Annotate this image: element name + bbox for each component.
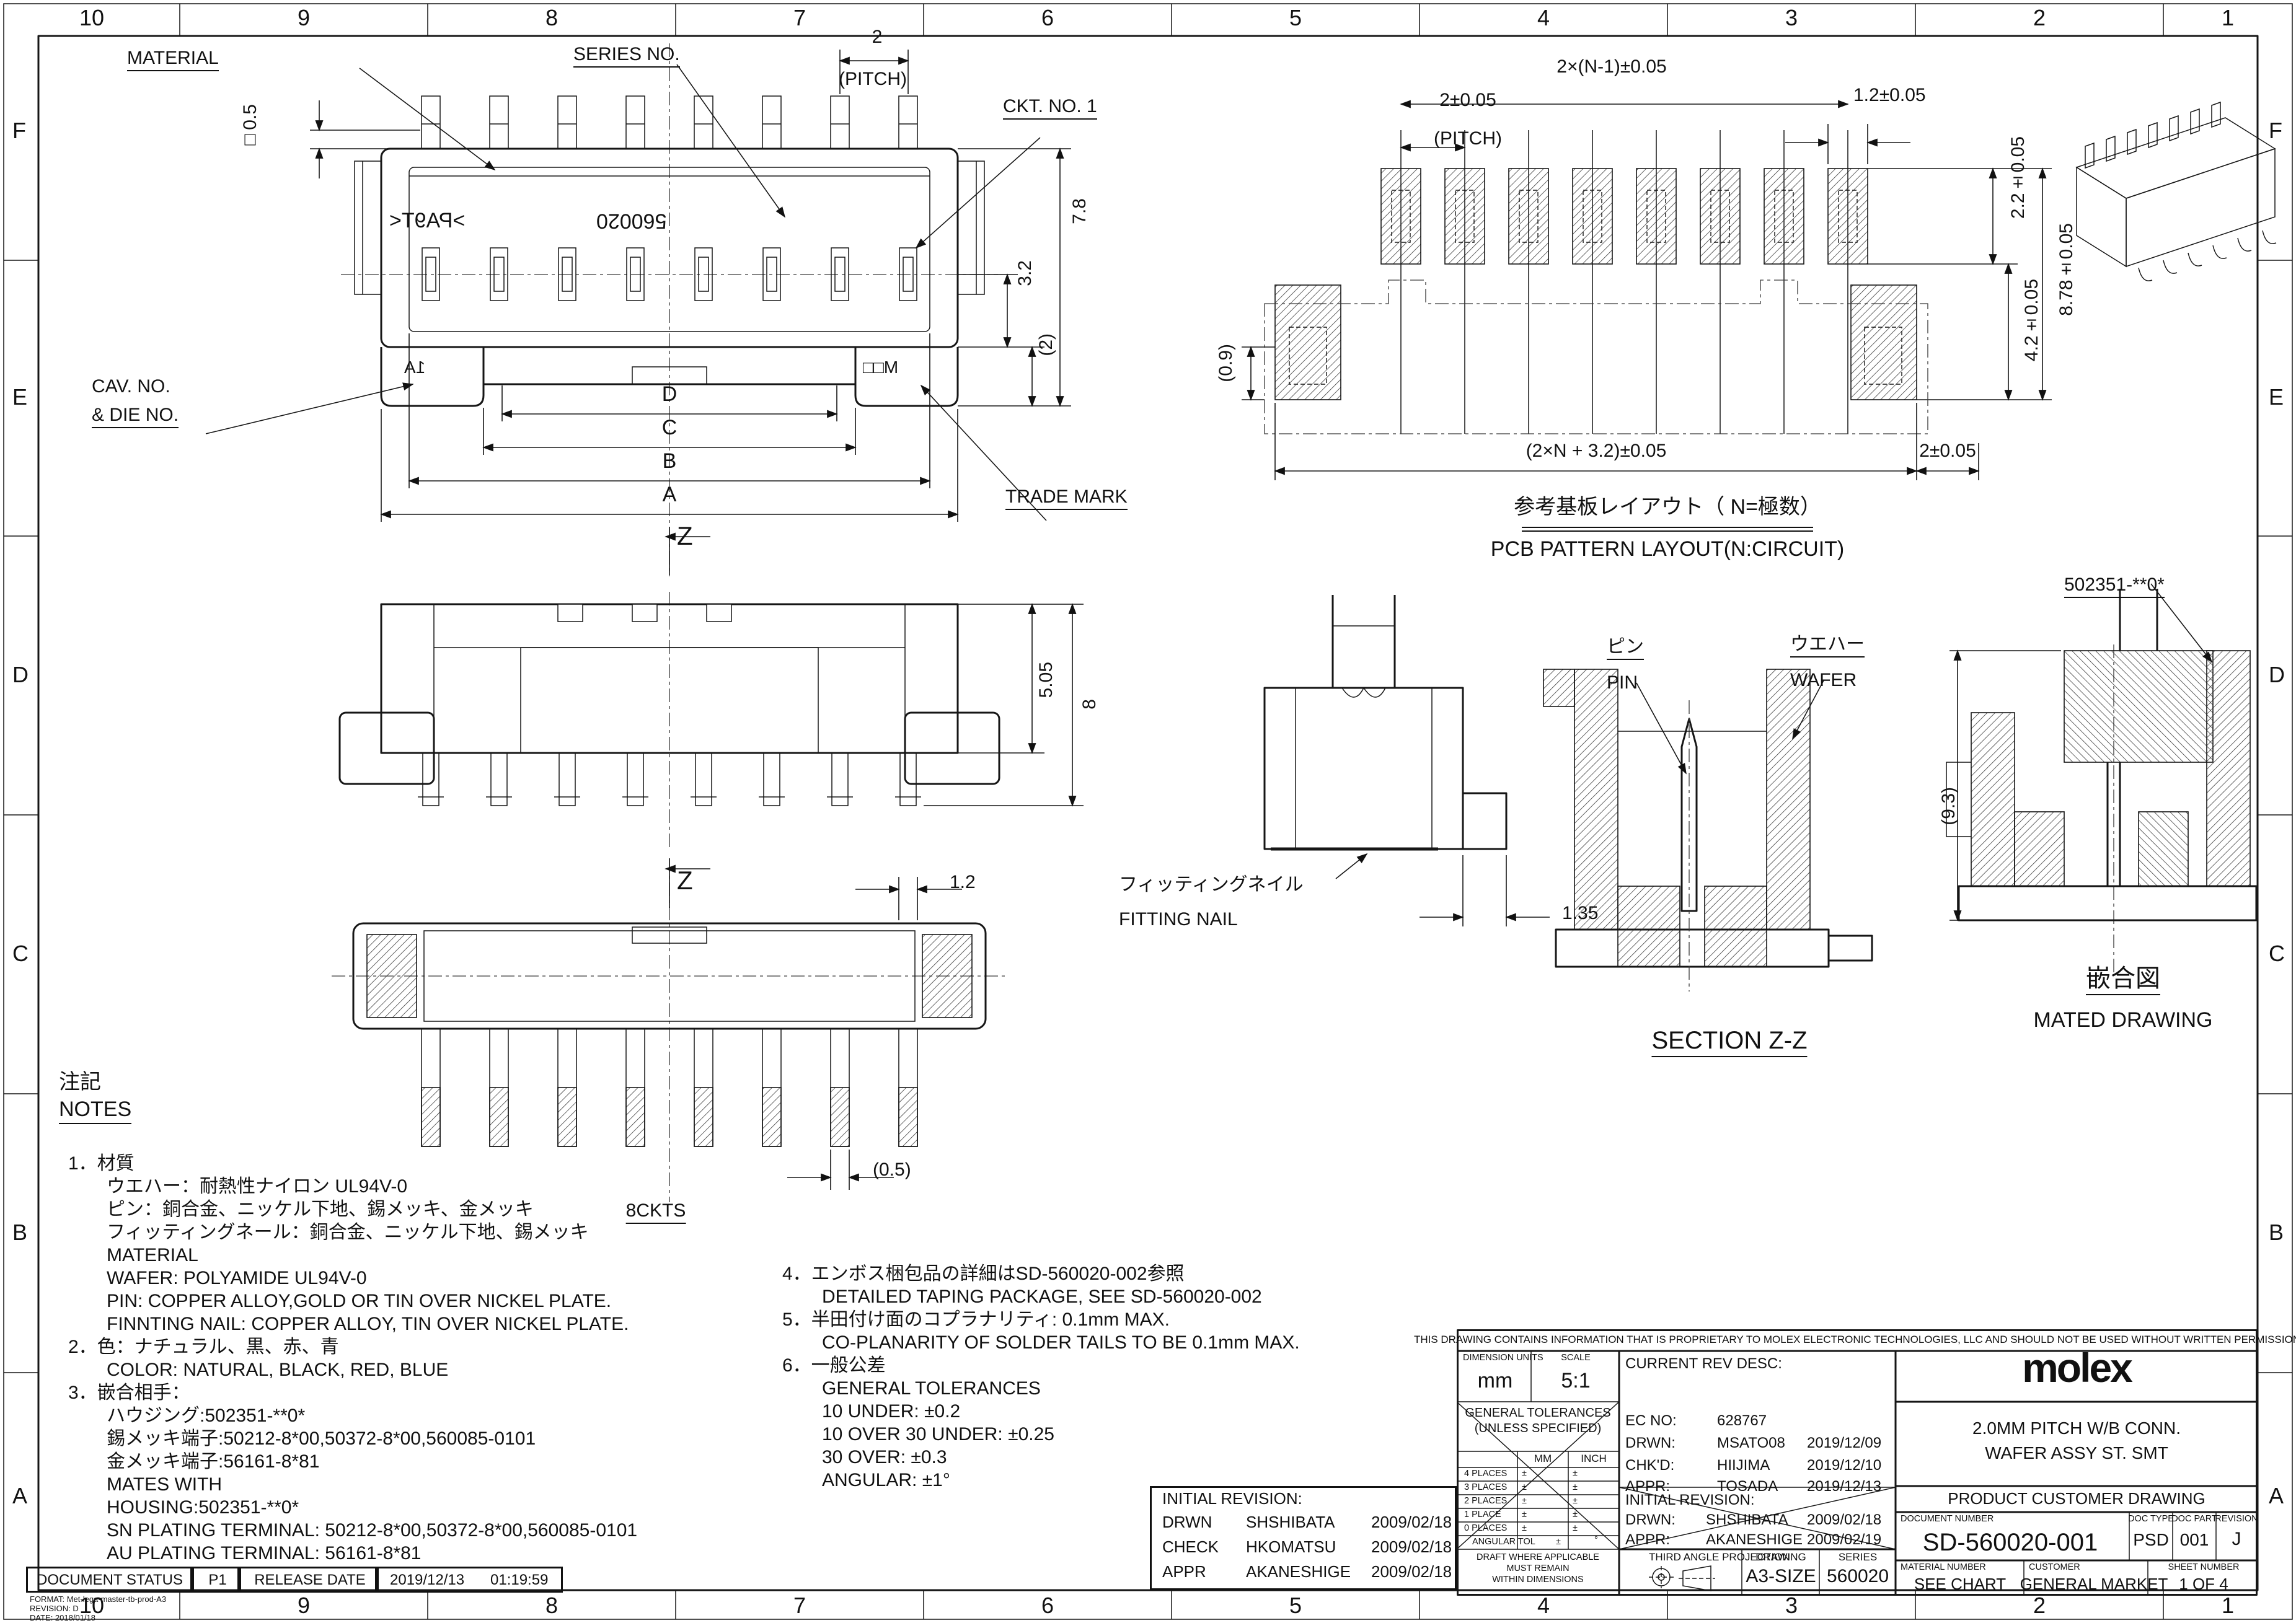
pcb-dim-2-2: 2.2±0.05 [2008,136,2028,219]
revision-role: APPR [1162,1563,1206,1580]
drwn-value: MSATO08 [1717,1435,1785,1451]
grid-row-label: E [12,385,27,410]
dimension-units-label: DIMENSION UNITS [1463,1353,1543,1363]
doc-status-value: P1 [208,1572,226,1588]
pcb-dim-pitch: 2±0.05 [1439,90,1496,110]
chkd-label: CHK'D: [1625,1458,1674,1474]
side-view [50,589,1141,855]
mated-part-no: 502351-**0* [2064,575,2165,598]
grid-col-label: 3 [1785,6,1798,30]
tol-row-label: 1 PLACE [1464,1510,1501,1520]
note-line: ウエハー：耐熱性ナイロン UL94V-0 [107,1177,407,1197]
grid-row-label: B [12,1221,27,1245]
grid-col-label: 7 [793,1594,806,1618]
grid-row-label: E [2269,385,2284,410]
ckt-no-label: CKT. NO. 1 [1003,97,1097,120]
sheet-number-label: SHEET NUMBER [2168,1563,2240,1573]
grid-col-label: 10 [79,6,104,30]
note-line: FINNTING NAIL: COPPER ALLOY, TIN OVER NI… [107,1314,629,1334]
appr-date: 2019/12/13 [1807,1479,1881,1495]
note-line: ハウジング:502351-**0* [107,1406,305,1426]
doc-type-label: DOC TYPE [2128,1515,2174,1524]
dim-8: 8 [1080,699,1100,710]
grid-col-label: 9 [298,6,310,30]
doc-type-value: PSD [2133,1531,2169,1549]
grid-col-label: 6 [1041,6,1054,30]
note-line: HOUSING:502351-**0* [107,1498,299,1518]
marking-trademark: M□□ [863,358,898,377]
marking-cav-die: 1A [404,358,425,377]
init-drwn-label: DRWN: [1625,1512,1676,1528]
drawing-size: A3-SIZE [1746,1567,1816,1586]
ckts-label: 8CKTS [626,1201,686,1224]
note-line: 10 UNDER: ±0.2 [822,1402,960,1422]
note-line: COLOR: NATURAL, BLACK, RED, BLUE [107,1360,448,1380]
grid-col-label: 3 [1785,1594,1798,1618]
note-line: 10 OVER 30 UNDER: ±0.25 [822,1425,1054,1445]
grid-row-label: F [12,119,26,143]
material-number-value: SEE CHART [1914,1575,2006,1593]
scale-value: 5:1 [1561,1370,1590,1392]
release-time: 01:19:59 [490,1572,548,1588]
grid-col-label: 2 [2033,1594,2046,1618]
dim-0-5: (0.5) [873,1160,911,1180]
pin-label-jp: ピン [1607,637,1644,660]
bottom-view [50,855,1141,1227]
grid-row-label: C [12,942,29,966]
pcb-pitch-label: (PITCH) [1434,129,1502,149]
dim-7-8: 7.8 [1070,198,1090,224]
document-number-label: DOCUMENT NUMBER [1901,1515,1994,1524]
grid-col-label: 4 [1537,1594,1550,1618]
pm-sign: ± [1522,1524,1527,1534]
drawing-title-line2: WAFER ASSY ST. SMT [1985,1444,2168,1462]
notes-header-en: NOTES [59,1098,131,1124]
grid-col-label: 1 [2222,1594,2234,1618]
format-line: REVISION: D [30,1604,79,1614]
note-line: SN PLATING TERMINAL: 50212-8*00,50372-8*… [107,1521,637,1541]
draft-note: DRAFT WHERE APPLICABLE [1477,1553,1599,1563]
doc-status-value-cell: P1 [192,1567,239,1593]
tol-row-label: 4 PLACES [1464,1469,1507,1479]
section-title: SECTION Z-Z [1651,1027,1807,1057]
isometric-view [2039,74,2294,359]
revision-name: SHSHIBATA [1246,1513,1335,1531]
grid-col-label: 5 [1289,1594,1302,1618]
grid-col-label: 7 [793,6,806,30]
note-line: ANGULAR: ±1° [822,1471,950,1490]
release-date: 2019/12/13 [390,1572,464,1588]
customer-value: GENERAL MARKET [2020,1575,2168,1593]
doc-part-label: DOC PART [2171,1515,2217,1524]
note-line: 金メッキ端子:56161-8*81 [107,1452,319,1472]
note-line: 2．色：ナチュラル、黒、赤、青 [68,1337,339,1357]
drawing-title-line1: 2.0MM PITCH W/B CONN. [1972,1419,2181,1438]
dim-c: C [662,416,678,439]
grid-col-label: 8 [545,1594,558,1618]
grid-col-label: 2 [2033,6,2046,30]
dim-9-3: (9.3) [1939,787,1959,825]
drwn-label: DRWN: [1625,1435,1676,1451]
release-date-label: RELEASE DATE [254,1572,366,1588]
wafer-label-en: WAFER [1790,671,1857,690]
sq-dim: □0.5 [241,104,260,151]
dim-a: A [663,483,677,506]
note-line: AU PLATING TERMINAL: 56161-8*81 [107,1544,421,1564]
revision-date: 2009/02/18 [1371,1563,1452,1580]
drwn-date: 2019/12/09 [1807,1435,1881,1451]
pm-sign: ± [1522,1469,1527,1479]
revision-name: AKANESHIGE [1246,1563,1351,1580]
pcb-title-rule [1522,527,1813,532]
current-rev-label: CURRENT REV DESC: [1625,1356,1782,1372]
note-line: 30 OVER: ±0.3 [822,1448,947,1467]
grid-col-label: 9 [298,1594,310,1618]
sheet-number-value: 1 OF 4 [2179,1575,2228,1593]
tol-row-label: 2 PLACES [1464,1497,1507,1506]
proprietary-notice: THIS DRAWING CONTAINS INFORMATION THAT I… [1414,1334,2296,1345]
note-line: 6．一般公差 [782,1356,886,1376]
customer-label: CUSTOMER [2029,1563,2080,1573]
dim-5-05: 5.05 [1036,662,1056,698]
init-drwn-date: 2009/02/18 [1807,1512,1881,1528]
note-line: WAFER: POLYAMIDE UL94V-0 [107,1269,367,1288]
angular-tol-label: ANGULAR TOL [1472,1537,1535,1547]
draft-note: MUST REMAIN [1506,1564,1569,1574]
pcb-dim-1-2: 1.2±0.05 [1853,86,1926,105]
fitting-nail-label-jp: フィッティングネイル [1119,875,1304,895]
init-appr-label: APPR: [1625,1532,1670,1548]
col-inch-label: INCH [1581,1453,1607,1464]
marking-material: >PA9T< [389,209,465,232]
doc-status-label: DOCUMENT STATUS [37,1572,183,1588]
unless-specified-label: (UNLESS SPECIFIED) [1475,1422,1601,1436]
pm-sign: ± [1522,1510,1527,1520]
fitting-nail-label-en: FITTING NAIL [1119,910,1238,930]
pitch-label: (PITCH) [839,69,907,89]
dim-3-2: 3.2 [1015,260,1035,286]
init-appr-date: 2009/02/19 [1807,1532,1881,1548]
pm-sign: ± [1556,1537,1561,1547]
initial-revision-title: INITIAL REVISION: [1162,1490,1302,1507]
scale-label: SCALE [1561,1353,1591,1363]
note-line: 5．半田付け面のコプラナリティ: 0.1mm MAX. [782,1310,1170,1330]
notes-header-jp: 注記 [59,1071,101,1094]
doc-part-value: 001 [2180,1531,2209,1549]
note-line: 3．嵌合相手： [68,1383,190,1403]
note-line: DETAILED TAPING PACKAGE, SEE SD-560020-0… [822,1287,1262,1307]
draft-note: WITHIN DIMENSIONS [1492,1575,1583,1585]
series-value: 560020 [1827,1567,1889,1586]
note-line: ピン：銅合金、ニッケル下地、錫メッキ、金メッキ [107,1200,534,1220]
general-tolerances-label: GENERAL TOLERANCES [1465,1407,1610,1420]
pm-sign: ± [1573,1469,1578,1479]
chkd-value: HIIJIMA [1717,1458,1770,1474]
doc-status-label-cell: DOCUMENT STATUS [26,1567,192,1593]
dim-1-35: 1.35 [1562,904,1598,923]
release-date-label-cell: RELEASE DATE [239,1567,377,1593]
grid-col-label: 1 [2222,6,2234,30]
revision-name: HKOMATSU [1246,1538,1336,1555]
pm-sign: ± [1573,1524,1578,1534]
note-line: 4．エンボス梱包品の詳細はSD-560020-002参照 [782,1264,1185,1284]
grid-row-label: A [2269,1484,2284,1508]
grid-col-label: 6 [1041,1594,1054,1618]
dim-d: D [662,383,678,406]
pm-sign: ± [1522,1497,1527,1506]
drawing-sheet: 10 9 8 7 6 5 4 3 2 1 10 9 8 7 6 5 4 3 2 … [0,0,2296,1623]
pm-sign: ± [1573,1497,1578,1506]
dim-1-2: 1.2 [950,873,976,892]
pm-sign: ± [1573,1483,1578,1493]
material-number-label: MATERIAL NUMBER [1901,1563,1986,1573]
revision-role: DRWN [1162,1513,1212,1531]
format-line: FORMAT: Met-lega-master-tb-prod-A3 [30,1595,166,1604]
pcb-dim-total: (2×N + 3.2)±0.05 [1526,441,1667,461]
pm-sign: ± [1573,1510,1578,1520]
release-date-value-cell: 2019/12/13 01:19:59 [377,1567,563,1593]
grid-row-label: A [12,1484,27,1508]
product-customer-drawing: PRODUCT CUSTOMER DRAWING [1948,1490,2205,1507]
grid-row-label: B [2269,1221,2284,1245]
marking-series: 560020 [596,209,666,232]
grid-row-label: D [12,663,29,687]
ec-no-value: 628767 [1717,1413,1767,1429]
front-view [50,37,1141,583]
trade-mark-label: TRADE MARK [1005,487,1128,510]
revision-label: REVISION [2215,1515,2258,1524]
document-number: SD-560020-001 [1923,1529,2098,1556]
note-line: GENERAL TOLERANCES [822,1379,1041,1399]
pcb-title-jp: 参考基板レイアウト（ N=極数） [1514,496,1821,519]
pin-label-en: PIN [1607,673,1638,693]
note-line: 1．材質 [68,1154,135,1174]
tol-row-label: 3 PLACES [1464,1483,1507,1493]
molex-logo: molex [2022,1346,2131,1390]
drawing-label: DRAWING [1755,1552,1806,1563]
format-line: DATE: 2018/01/18 [30,1614,95,1623]
grid-col-label: 4 [1537,6,1550,30]
revision-role: CHECK [1162,1538,1219,1555]
init-drwn-value: SHSHIBATA [1706,1512,1788,1528]
mated-title-jp: 嵌合図 [2086,965,2160,995]
col-mm-label: MM [1534,1453,1552,1464]
revision-value: J [2232,1529,2241,1549]
series-label: SERIES [1839,1552,1877,1563]
note-line: フィッティングネール：銅合金、ニッケル下地、錫メッキ [107,1223,589,1243]
section-view [1178,589,1953,1084]
pm-sign: ± [1522,1483,1527,1493]
dim-2-paren: (2) [1036,333,1056,356]
wafer-label-jp: ウエハー [1790,635,1865,658]
initial-rev-label: INITIAL REVISION: [1625,1492,1755,1508]
note-line: 錫メッキ端子:50212-8*00,50372-8*00,560085-0101 [107,1429,536,1449]
revision-date: 2009/02/18 [1371,1513,1452,1531]
pcb-dim-span: 2×(N-1)±0.05 [1556,57,1666,77]
ec-no-label: EC NO: [1625,1413,1677,1429]
deg-sign: ° [1594,1536,1598,1546]
die-no-label: & DIE NO. [92,405,179,428]
revision-date: 2009/02/18 [1371,1538,1452,1555]
dim-b: B [663,450,677,473]
pitch-value: 2 [872,27,883,47]
section-z-letter: Z [677,866,693,894]
chkd-date: 2019/12/10 [1807,1458,1881,1474]
mated-title-en: MATED DRAWING [2034,1009,2213,1032]
note-line: MATES WITH [107,1475,222,1495]
note-line: CO-PLANARITY OF SOLDER TAILS TO BE 0.1mm… [822,1333,1300,1353]
material-label: MATERIAL [127,48,219,71]
grid-col-label: 5 [1289,6,1302,30]
series-no-label: SERIES NO. [573,45,680,68]
note-line: MATERIAL [107,1246,198,1265]
note-line: PIN: COPPER ALLOY,GOLD OR TIN OVER NICKE… [107,1291,611,1311]
tol-row-label: 0 PLACES [1464,1524,1507,1534]
pcb-dim-0-9: (0.9) [1216,344,1236,382]
pcb-dim-2: 2±0.05 [1919,441,1976,461]
section-z-letter: Z [677,522,693,550]
init-appr-value: AKANESHIGE [1706,1532,1803,1548]
grid-col-label: 8 [545,6,558,30]
cav-no-label: CAV. NO. [92,377,170,397]
pcb-title-en: PCB PATTERN LAYOUT(N:CIRCUIT) [1491,538,1844,561]
dimension-units-value: mm [1478,1370,1513,1392]
